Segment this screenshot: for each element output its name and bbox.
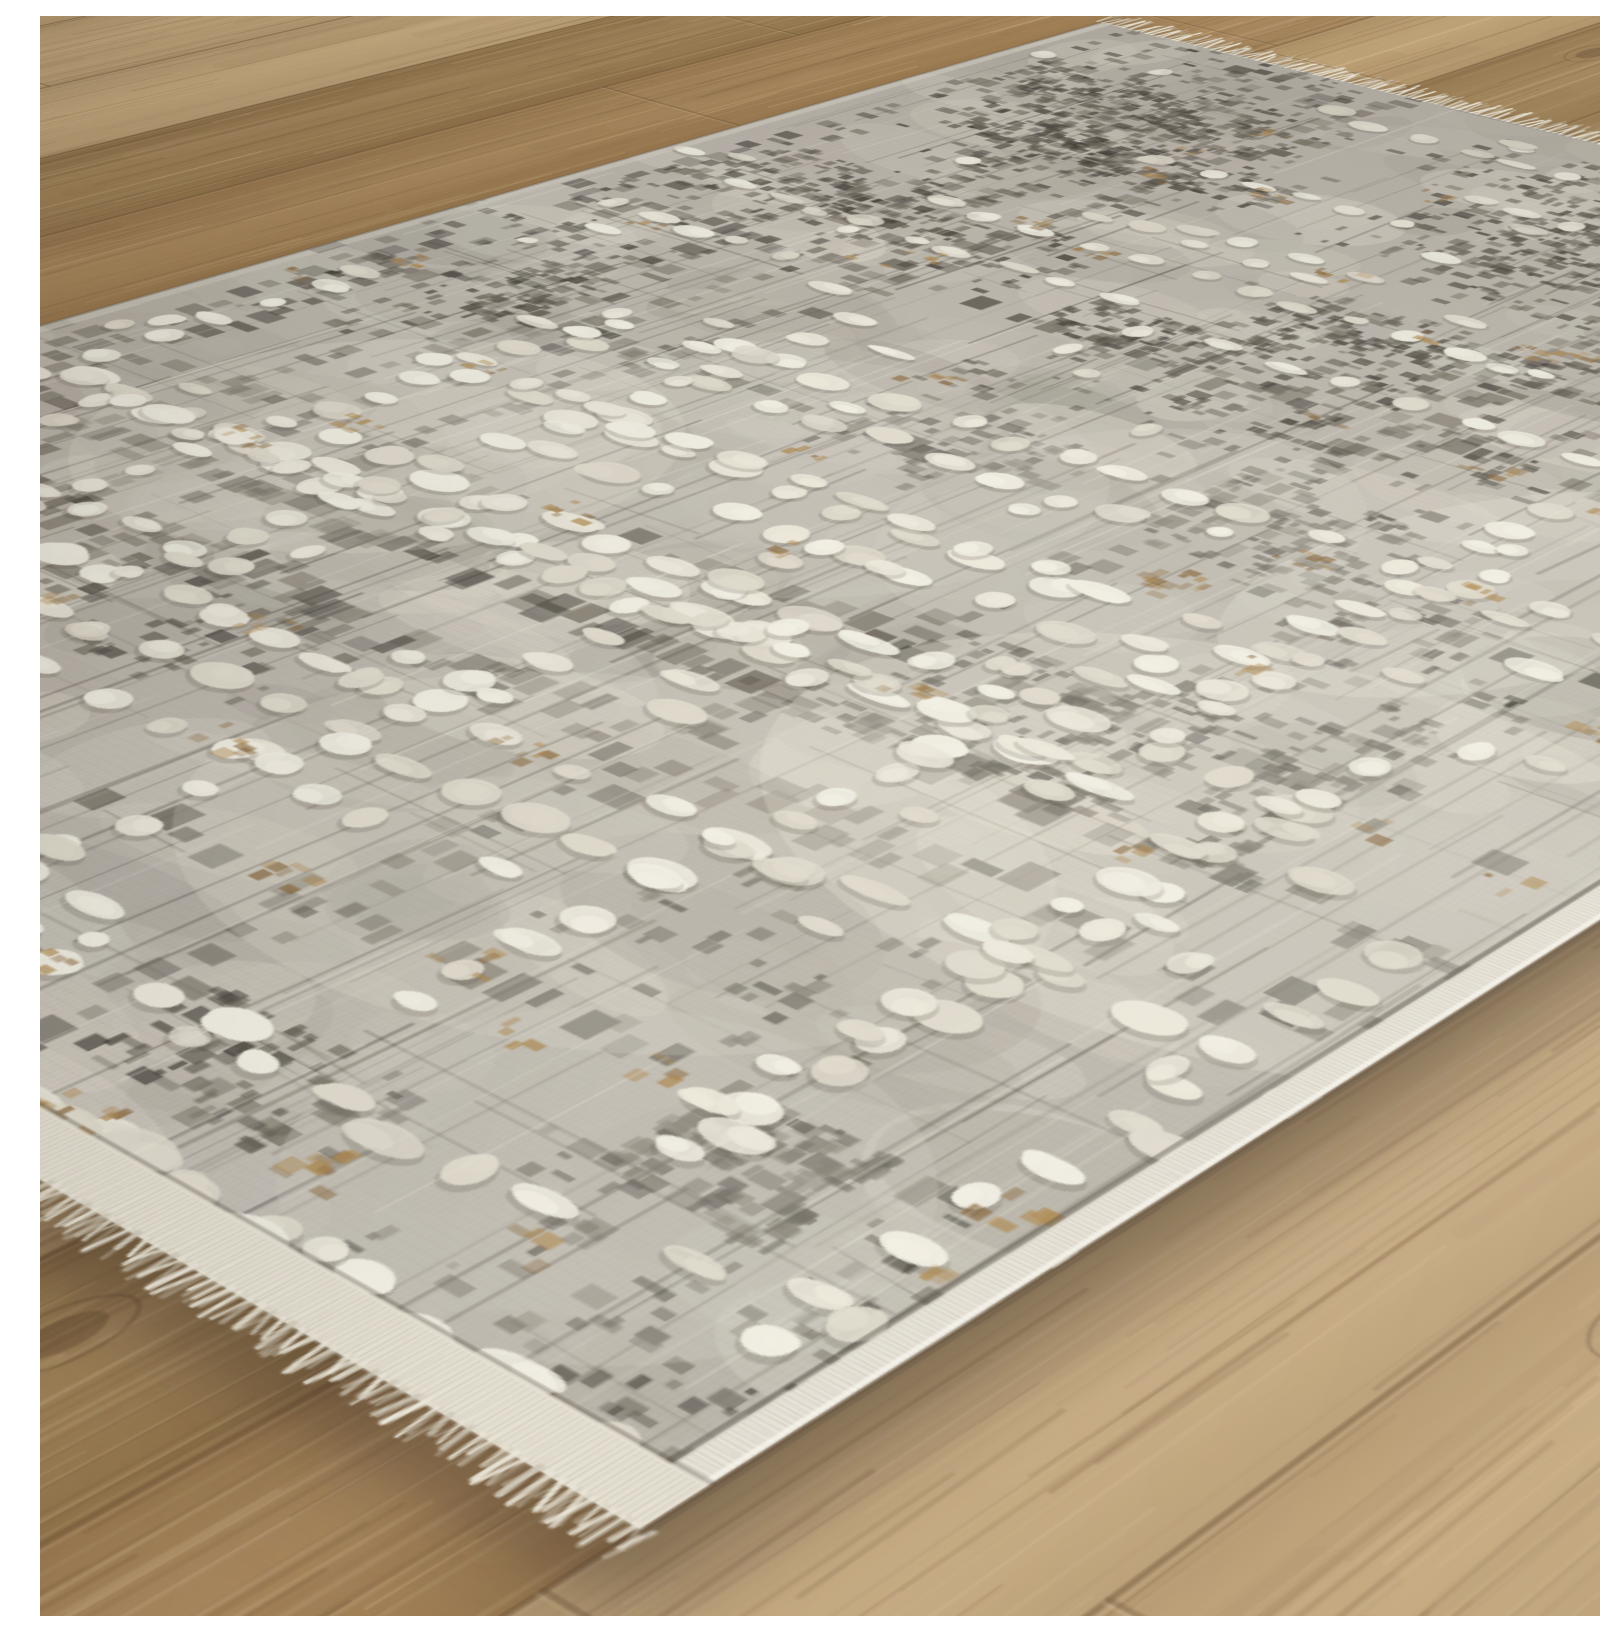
rug-scene-canvas <box>40 16 1600 1616</box>
product-photo <box>40 16 1600 1616</box>
